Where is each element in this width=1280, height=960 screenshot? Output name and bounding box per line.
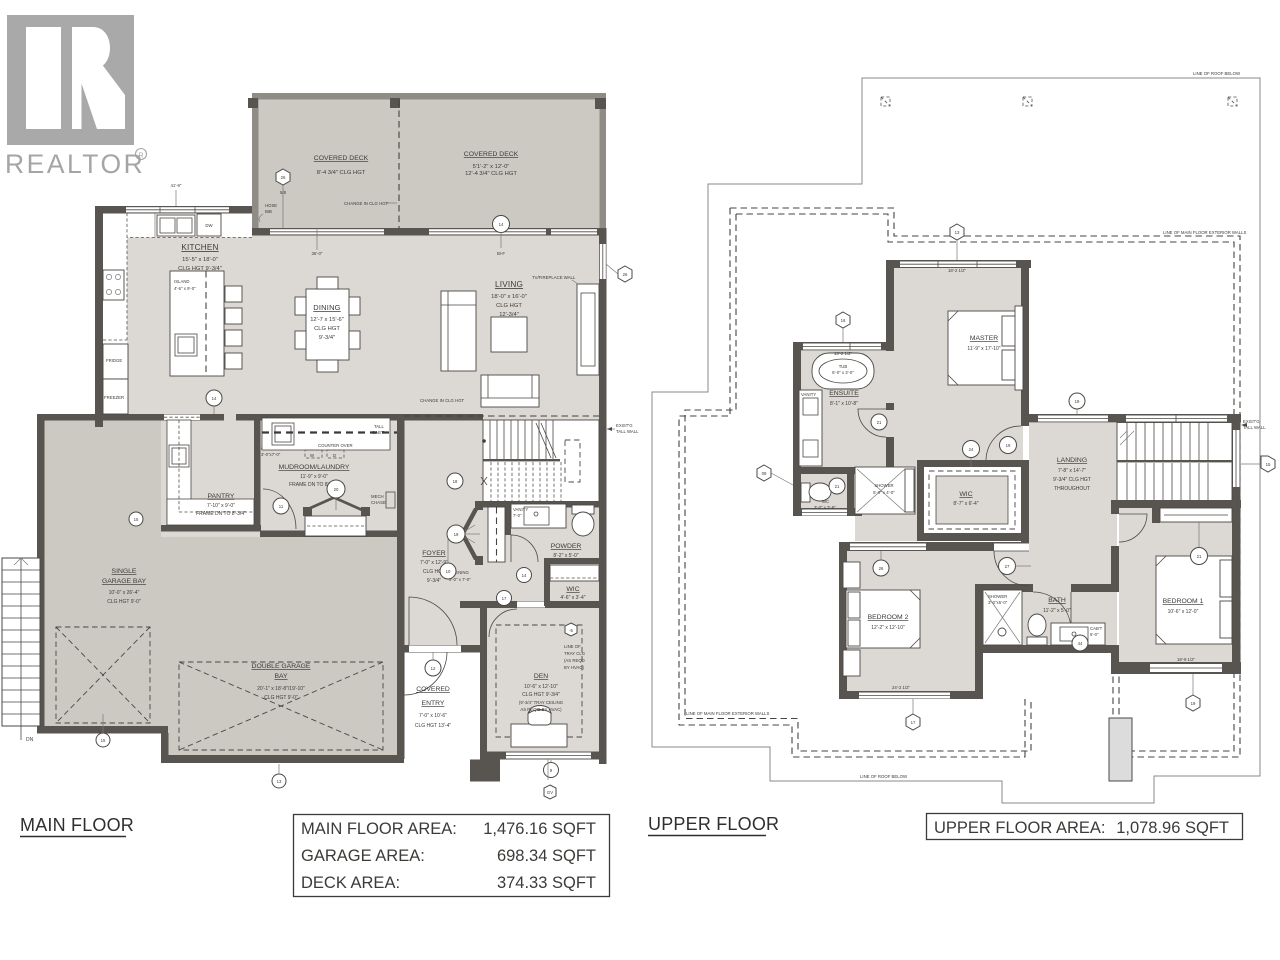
svg-text:KITCHEN: KITCHEN bbox=[181, 243, 218, 252]
svg-text:WC: WC bbox=[822, 499, 829, 504]
svg-text:-5: -5 bbox=[569, 628, 573, 633]
svg-text:18'-2 1/2": 18'-2 1/2" bbox=[948, 268, 967, 273]
svg-text:7'-0": 7'-0" bbox=[513, 513, 522, 518]
svg-text:16: 16 bbox=[841, 318, 846, 323]
svg-text:15'-5" x 18'-0": 15'-5" x 18'-0" bbox=[182, 257, 218, 263]
svg-text:13: 13 bbox=[277, 779, 282, 784]
svg-text:11'-2" x 5'-0": 11'-2" x 5'-0" bbox=[1043, 608, 1071, 614]
svg-text:REALTOR: REALTOR bbox=[5, 149, 145, 179]
svg-text:LINE OF ROOF BELOW: LINE OF ROOF BELOW bbox=[860, 774, 908, 779]
svg-text:13'-2 1/2": 13'-2 1/2" bbox=[834, 351, 853, 356]
svg-text:12: 12 bbox=[431, 666, 436, 671]
svg-text:GARAGE BAY: GARAGE BAY bbox=[102, 578, 147, 585]
svg-text:LINE OF: LINE OF bbox=[564, 644, 581, 649]
svg-text:MASTER: MASTER bbox=[970, 335, 998, 342]
svg-text:36'-0": 36'-0" bbox=[312, 251, 323, 256]
svg-text:BEDROOM 2: BEDROOM 2 bbox=[868, 614, 909, 621]
svg-text:CHANGE IN CLG HGT: CHANGE IN CLG HGT bbox=[344, 201, 389, 206]
svg-text:20'-1" x 18'-8"/19'-10": 20'-1" x 18'-8"/19'-10" bbox=[257, 686, 305, 692]
svg-text:11'-9" x 9'-0": 11'-9" x 9'-0" bbox=[300, 474, 328, 480]
svg-text:TALL: TALL bbox=[374, 424, 385, 429]
svg-text:R: R bbox=[138, 153, 143, 160]
svg-text:HOSE: HOSE bbox=[265, 203, 277, 208]
svg-text:6'-0" x 3'-0": 6'-0" x 3'-0" bbox=[832, 370, 854, 375]
svg-text:8'-1" x 10'-8": 8'-1" x 10'-8" bbox=[830, 401, 858, 407]
svg-text:8'-4 3/4" CLG HGT: 8'-4 3/4" CLG HGT bbox=[317, 170, 366, 176]
svg-text:10'-0" x 26'-4": 10'-0" x 26'-4" bbox=[109, 590, 140, 596]
svg-text:4'-6" x 9'-0": 4'-6" x 9'-0" bbox=[174, 286, 196, 291]
svg-text:7'-10" x 9'-0": 7'-10" x 9'-0" bbox=[207, 503, 235, 509]
svg-text:8'-7" x 6'-4": 8'-7" x 6'-4" bbox=[953, 501, 978, 507]
svg-text:12'-2" x 12'-10": 12'-2" x 12'-10" bbox=[871, 625, 905, 631]
svg-text:9'-3/4": 9'-3/4" bbox=[427, 578, 441, 584]
svg-text:MECH: MECH bbox=[371, 494, 384, 499]
svg-text:DN: DN bbox=[26, 737, 34, 743]
svg-text:CLG HGT: CLG HGT bbox=[496, 303, 522, 309]
svg-text:GARAGE AREA:: GARAGE AREA: bbox=[301, 847, 425, 865]
svg-text:3'-0"x7'-0": 3'-0"x7'-0" bbox=[261, 452, 281, 457]
svg-text:CHANGE IN CLG HGT: CHANGE IN CLG HGT bbox=[420, 398, 465, 403]
svg-text:3'-0" x 3'-8": 3'-0" x 3'-8" bbox=[814, 505, 836, 510]
svg-text:BY HVAC): BY HVAC) bbox=[564, 665, 584, 670]
svg-text:VANITY: VANITY bbox=[801, 392, 816, 397]
svg-text:17: 17 bbox=[502, 596, 507, 601]
svg-text:DOUBLE GARAGE: DOUBLE GARAGE bbox=[252, 663, 311, 670]
svg-text:09: 09 bbox=[762, 471, 767, 476]
svg-text:26: 26 bbox=[879, 566, 884, 571]
svg-text:DECK AREA:: DECK AREA: bbox=[301, 874, 400, 892]
svg-text:MAIN FLOOR: MAIN FLOOR bbox=[20, 815, 134, 835]
svg-text:VANITY: VANITY bbox=[513, 507, 528, 512]
svg-text:17: 17 bbox=[911, 720, 916, 725]
svg-text:MUDROOM/LAUNDRY: MUDROOM/LAUNDRY bbox=[279, 464, 350, 471]
svg-text:19: 19 bbox=[454, 532, 459, 537]
svg-text:BAY: BAY bbox=[274, 673, 288, 680]
svg-text:19: 19 bbox=[1075, 399, 1080, 404]
svg-text:CLG HGT 13'-4": CLG HGT 13'-4" bbox=[415, 723, 451, 729]
svg-text:SHOWER: SHOWER bbox=[988, 594, 1007, 599]
svg-text:9'-3/4" CLG HGT: 9'-3/4" CLG HGT bbox=[1053, 477, 1091, 483]
svg-text:15: 15 bbox=[1266, 462, 1271, 467]
svg-text:SHOWER: SHOWER bbox=[874, 483, 893, 488]
svg-text:14: 14 bbox=[212, 396, 217, 401]
svg-text:FREEZER: FREEZER bbox=[104, 395, 124, 400]
svg-text:LANDING: LANDING bbox=[1057, 457, 1087, 464]
svg-text:BEDROOM 1: BEDROOM 1 bbox=[1163, 598, 1204, 605]
svg-text:UPPER FLOOR: UPPER FLOOR bbox=[648, 814, 779, 834]
svg-text:10'-6" x 12'-0": 10'-6" x 12'-0" bbox=[1168, 609, 1199, 615]
svg-text:5'-0" x 4'-0": 5'-0" x 4'-0" bbox=[873, 490, 895, 495]
svg-text:GV: GV bbox=[547, 790, 553, 795]
svg-text:12'-7 x 15'-6": 12'-7 x 15'-6" bbox=[310, 317, 344, 323]
svg-text:26: 26 bbox=[281, 175, 286, 180]
svg-text:20: 20 bbox=[334, 487, 339, 492]
svg-text:TRAY CLG: TRAY CLG bbox=[564, 651, 586, 656]
svg-text:CLG HGT: CLG HGT bbox=[314, 326, 340, 332]
svg-text:UPPER FLOOR AREA:: UPPER FLOOR AREA: bbox=[934, 819, 1105, 837]
svg-text:15: 15 bbox=[101, 738, 106, 743]
svg-text:14: 14 bbox=[499, 222, 504, 227]
svg-text:LIVING: LIVING bbox=[495, 280, 523, 289]
svg-text:12'-4 3/4" CLG HGT: 12'-4 3/4" CLG HGT bbox=[465, 171, 517, 177]
svg-text:FRAME DN TO 8'-3/4": FRAME DN TO 8'-3/4" bbox=[196, 511, 246, 517]
svg-text:BIB: BIB bbox=[265, 209, 272, 214]
svg-text:19: 19 bbox=[1006, 443, 1011, 448]
svg-text:CAB'T: CAB'T bbox=[1090, 626, 1103, 631]
svg-text:24: 24 bbox=[969, 447, 974, 452]
svg-text:BATH: BATH bbox=[1048, 597, 1066, 604]
svg-text:POWDER: POWDER bbox=[551, 543, 582, 550]
svg-text:CHASE: CHASE bbox=[371, 500, 386, 505]
svg-text:ENSUITE: ENSUITE bbox=[829, 390, 859, 397]
svg-text:THROUGHOUT: THROUGHOUT bbox=[1054, 486, 1090, 492]
svg-text:698.34 SQFT: 698.34 SQFT bbox=[497, 847, 596, 865]
svg-text:BI-F: BI-F bbox=[497, 251, 505, 256]
svg-text:41'-9": 41'-9" bbox=[171, 183, 182, 188]
svg-text:21: 21 bbox=[877, 420, 882, 425]
svg-text:1,078.96 SQFT: 1,078.96 SQFT bbox=[1116, 819, 1229, 837]
svg-text:4'-6" x 3'-4": 4'-6" x 3'-4" bbox=[560, 595, 585, 601]
svg-text:TUB: TUB bbox=[839, 364, 848, 369]
svg-text:WIC: WIC bbox=[959, 491, 972, 498]
svg-text:ISLAND: ISLAND bbox=[174, 279, 190, 284]
svg-text:DW: DW bbox=[205, 223, 213, 228]
svg-text:EXIST'G: EXIST'G bbox=[616, 423, 633, 428]
svg-text:19: 19 bbox=[1191, 701, 1196, 706]
svg-text:DEN: DEN bbox=[534, 673, 548, 680]
svg-text:44: 44 bbox=[1078, 641, 1083, 646]
svg-text:5'-0": 5'-0" bbox=[1090, 632, 1099, 637]
svg-text:SINGLE: SINGLE bbox=[112, 568, 137, 575]
svg-text:3'-0"x5'-0": 3'-0"x5'-0" bbox=[988, 600, 1008, 605]
svg-text:MAIN FLOOR AREA:: MAIN FLOOR AREA: bbox=[301, 820, 457, 838]
svg-text:5'1'-2" x 12'-0": 5'1'-2" x 12'-0" bbox=[473, 164, 510, 170]
svg-text:7'-8" x 14'-7": 7'-8" x 14'-7" bbox=[1058, 468, 1086, 474]
svg-text:EXIST'G: EXIST'G bbox=[1243, 419, 1260, 424]
svg-text:LINE OF MAIN FLOOR EXTERIOR WA: LINE OF MAIN FLOOR EXTERIOR WALLS bbox=[686, 711, 770, 716]
svg-text:10'-6" x 12'-10": 10'-6" x 12'-10" bbox=[524, 684, 558, 690]
svg-text:1,476.16 SQFT: 1,476.16 SQFT bbox=[483, 820, 596, 838]
svg-text:11: 11 bbox=[279, 504, 284, 509]
svg-text:18'-9 1/2": 18'-9 1/2" bbox=[1177, 657, 1196, 662]
svg-text:18: 18 bbox=[453, 479, 458, 484]
svg-text:CLG HGT 9'-3/4": CLG HGT 9'-3/4" bbox=[522, 692, 560, 698]
svg-text:CAB'T: CAB'T bbox=[372, 430, 385, 435]
svg-text:26: 26 bbox=[623, 272, 628, 277]
svg-text:COVERED: COVERED bbox=[416, 686, 450, 693]
svg-text:WIC: WIC bbox=[566, 586, 579, 593]
svg-text:27: 27 bbox=[1005, 564, 1010, 569]
svg-text:CLG HGT 9'-0": CLG HGT 9'-0" bbox=[107, 599, 141, 605]
svg-text:374.33 SQFT: 374.33 SQFT bbox=[497, 874, 596, 892]
svg-text:TALL WALL: TALL WALL bbox=[616, 429, 639, 434]
svg-text:TV/FIREPLACE WALL: TV/FIREPLACE WALL bbox=[532, 275, 576, 280]
svg-text:18'-0" x 16'-0": 18'-0" x 16'-0" bbox=[491, 294, 527, 300]
svg-text:ENTRY: ENTRY bbox=[422, 700, 445, 707]
svg-text:14: 14 bbox=[522, 573, 527, 578]
svg-text:11'-9" x 17'-10": 11'-9" x 17'-10" bbox=[967, 346, 1000, 352]
svg-text:CLG HGT 9'-3/4": CLG HGT 9'-3/4" bbox=[178, 266, 222, 272]
svg-text:PANTRY: PANTRY bbox=[208, 493, 235, 500]
svg-text:15: 15 bbox=[134, 517, 139, 522]
svg-text:10: 10 bbox=[446, 569, 451, 574]
svg-text:DINING: DINING bbox=[313, 303, 340, 312]
svg-text:(AS REQD: (AS REQD bbox=[564, 658, 585, 663]
svg-text:5/8: 5/8 bbox=[280, 190, 287, 195]
svg-text:8'-2" x 5'-0": 8'-2" x 5'-0" bbox=[553, 553, 578, 559]
svg-text:21: 21 bbox=[1197, 554, 1202, 559]
svg-text:21: 21 bbox=[835, 484, 840, 489]
svg-text:CLG HGT 9'-0": CLG HGT 9'-0" bbox=[264, 695, 298, 701]
svg-text:LINE OF MAIN FLOOR EXTERIOR WA: LINE OF MAIN FLOOR EXTERIOR WALLS bbox=[1163, 230, 1247, 235]
svg-text:COUNTER OVER: COUNTER OVER bbox=[318, 443, 353, 448]
svg-text:COVERED DECK: COVERED DECK bbox=[314, 155, 369, 162]
svg-text:FOYER: FOYER bbox=[422, 550, 446, 557]
svg-text:9'-3/4": 9'-3/4" bbox=[319, 335, 335, 341]
svg-text:(9'-3/4" TRAY CEILING: (9'-3/4" TRAY CEILING bbox=[519, 700, 564, 705]
svg-text:13: 13 bbox=[955, 230, 960, 235]
svg-text:D: D bbox=[333, 453, 336, 458]
svg-text:24'-2 1/2": 24'-2 1/2" bbox=[892, 685, 911, 690]
svg-text:COVERED DECK: COVERED DECK bbox=[464, 151, 519, 158]
svg-text:FRIDGE: FRIDGE bbox=[106, 358, 122, 363]
svg-text:LINE OF ROOF BELOW: LINE OF ROOF BELOW bbox=[1193, 71, 1241, 76]
svg-text:7'-0" x 10'-6": 7'-0" x 10'-6" bbox=[419, 713, 447, 719]
svg-text:AS REQ'D BY HVAC): AS REQ'D BY HVAC) bbox=[520, 707, 562, 712]
